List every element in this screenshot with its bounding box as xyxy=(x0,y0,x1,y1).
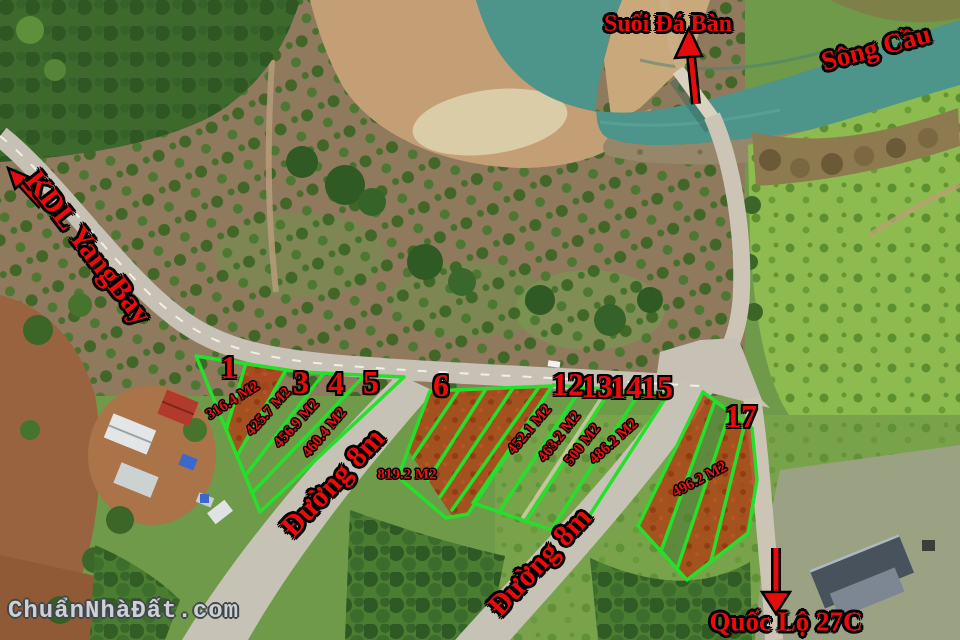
watermark: ChuẩnNhàĐất.com xyxy=(8,598,239,625)
plot-number-3: 3 xyxy=(293,366,309,398)
right-field xyxy=(742,85,960,428)
plot-number-6: 6 xyxy=(433,369,449,401)
plot-number-4: 4 xyxy=(328,367,344,399)
highway-label: Quốc Lộ 27C xyxy=(709,609,862,636)
plot-number-1: 1 xyxy=(221,351,237,383)
plot-number-17: 17 xyxy=(725,400,757,432)
stream-label: Suối Đá Bàn xyxy=(604,12,732,36)
plot-number-5: 5 xyxy=(363,366,379,398)
plot-number-15: 15 xyxy=(641,371,673,403)
plot-number-14: 14 xyxy=(610,371,642,403)
aerial-photo: Suối Đá Bàn Sông Cầu KDL YangBay Đường 8… xyxy=(0,0,960,640)
plot-number-13: 13 xyxy=(581,370,613,402)
shed-small xyxy=(922,540,935,551)
plot-number-12: 12 xyxy=(552,368,584,400)
plot-area-6: 819.2 M2 xyxy=(377,468,436,483)
